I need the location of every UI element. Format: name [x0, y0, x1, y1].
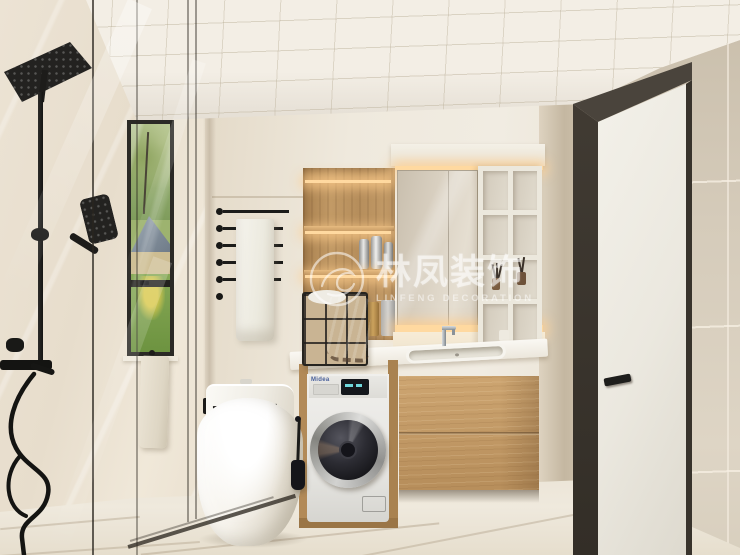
washer-detergent-drawer: [313, 384, 339, 395]
niche-led-middle: [305, 231, 391, 234]
shower-mixer-elbow: [6, 338, 24, 352]
watermark-brand-en: LINFENG DECORATION: [376, 293, 534, 304]
towel-rack-mount: [216, 225, 223, 232]
washer-display-segment: [356, 384, 362, 387]
watermark: 林凤装饰 LINFENG DECORATION: [308, 250, 534, 308]
toilet-flush-button: [240, 379, 252, 384]
watermark-phoenix-logo: [308, 250, 366, 308]
towel-rack-mount: [216, 208, 223, 215]
niche-led-top: [305, 180, 391, 183]
towel-rack-mount: [216, 276, 223, 283]
watermark-text: 林凤装饰 LINFENG DECORATION: [376, 255, 534, 304]
washer-door-ring: [310, 412, 386, 488]
shelf-niche: [483, 171, 508, 210]
shelf-candle: [499, 330, 509, 341]
towel-rack-mount: [216, 259, 223, 266]
towel-rack-bar: [223, 210, 289, 213]
washer-display-segment: [345, 384, 353, 387]
right-wall-vertical-seam: [727, 30, 729, 555]
washer-service-flap: [362, 496, 386, 512]
vanity-drawer-seam: [399, 432, 539, 435]
shelf-niche: [483, 215, 508, 254]
washer-cabinet-right: [388, 360, 398, 526]
faucet-tip: [452, 329, 455, 335]
toilet-body: [197, 398, 303, 546]
towel-rack-mount: [216, 242, 223, 249]
watermark-brand-cn: 林凤装饰: [376, 255, 534, 290]
washing-machine: Midea: [307, 374, 389, 522]
shelf-niche: [513, 215, 538, 254]
mirror-pelmet: [391, 144, 545, 166]
shelf-niche: [513, 304, 538, 343]
washer-display: [341, 379, 369, 395]
toilet-brush-head: [291, 460, 305, 490]
door: [570, 50, 692, 555]
bath-towel: [236, 219, 274, 341]
hand-towel: [139, 356, 169, 449]
drum-center-cap: [339, 441, 357, 459]
towel-rack-mount: [216, 293, 223, 300]
vanity-drawers: [399, 376, 539, 490]
washer-drum-glass: [318, 420, 378, 480]
shelf-niche: [513, 171, 538, 210]
sink-drain: [455, 353, 459, 356]
bathroom-render: Midea: [0, 0, 740, 555]
back-wall-tile-seam: [212, 196, 304, 198]
washer-brand-logo: Midea: [311, 377, 330, 383]
vanity-under-shadow: [399, 490, 539, 503]
